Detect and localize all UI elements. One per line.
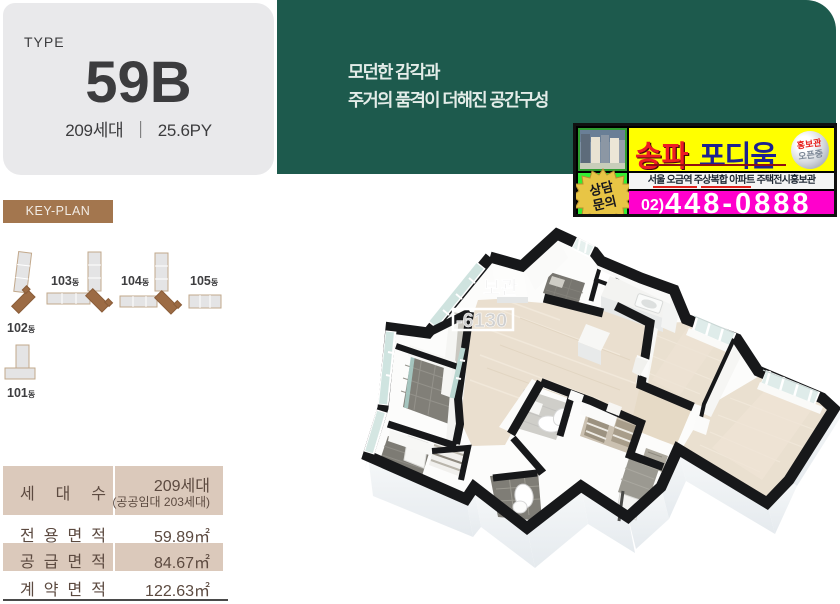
svg-text:-6130: -6130 [456, 310, 507, 332]
svg-text:103동: 103동 [51, 274, 80, 288]
svg-text:보관: 보관 [483, 277, 518, 299]
svg-text:102동: 102동 [7, 321, 36, 335]
svg-text:101동: 101동 [7, 386, 36, 400]
svg-text:105동: 105동 [190, 274, 219, 288]
svg-text:104동: 104동 [121, 274, 150, 288]
